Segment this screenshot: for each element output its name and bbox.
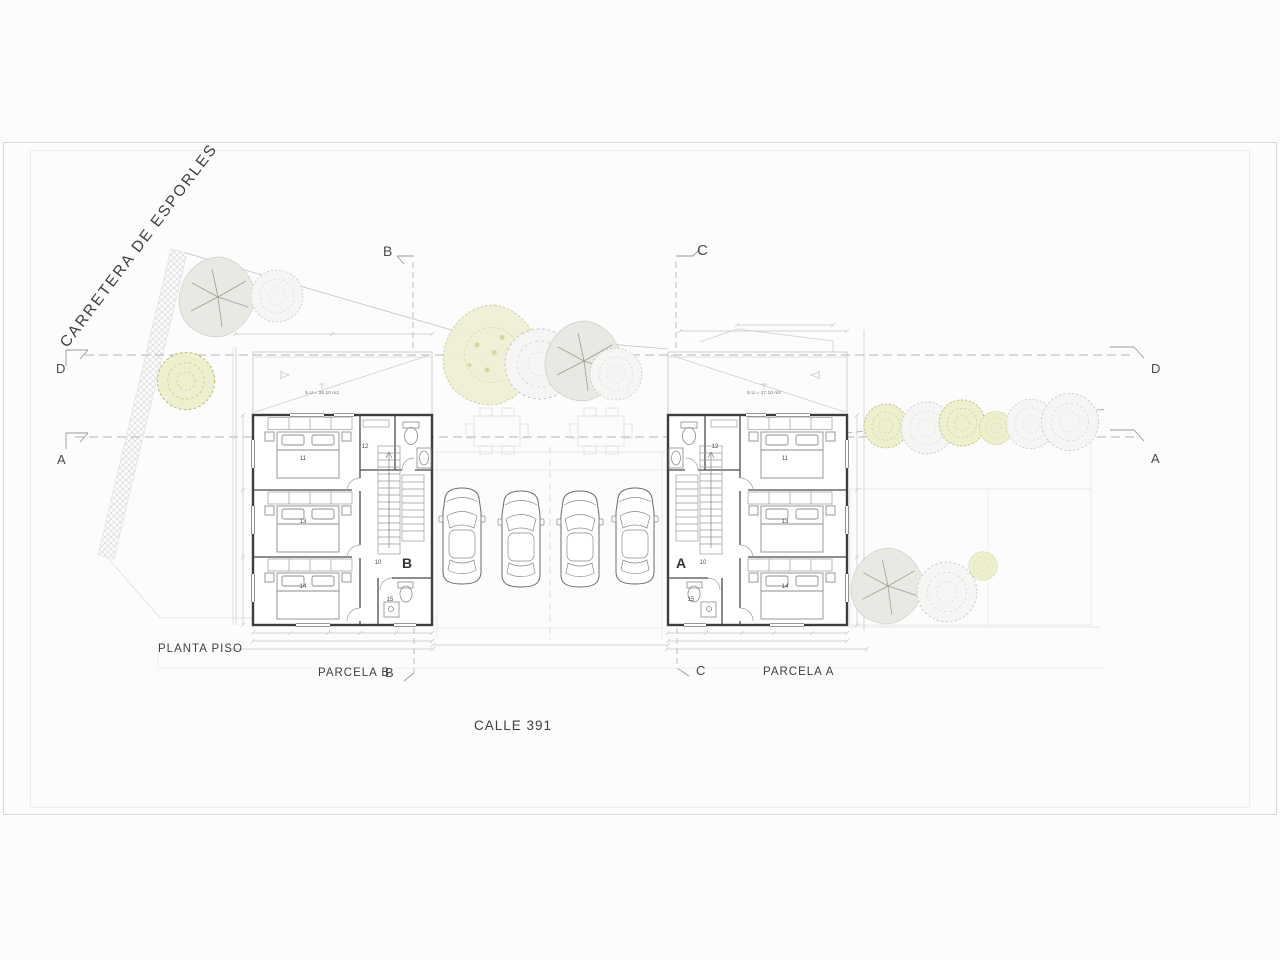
plan-title: PLANTA PISO — [158, 644, 243, 656]
plan-drawing — [0, 0, 1280, 960]
room-12-b: 12 — [358, 444, 372, 450]
parcel-a-label: PARCELA A — [763, 667, 834, 679]
room-11-a: 11 — [778, 456, 792, 462]
room-12-a: 12 — [708, 444, 722, 450]
parcel-b-label: PARCELA B — [318, 668, 390, 680]
section-marker-b-top: B — [383, 244, 392, 258]
room-11-b: 11 — [296, 456, 310, 462]
section-marker-b-plan: B — [402, 556, 412, 570]
room-15-b: 15 — [383, 597, 397, 603]
room-14-b: 14 — [296, 584, 310, 590]
room-13-b: 13 — [296, 519, 310, 525]
room-10-b: 10 — [371, 560, 385, 566]
house-b-plan — [251, 413, 432, 628]
section-marker-c-top: C — [697, 243, 708, 258]
section-marker-a-right: A — [1151, 452, 1160, 465]
section-marker-a-plan: A — [676, 556, 686, 570]
terrace-b-area-label: S.U.= 26.10 m2 — [292, 391, 352, 396]
section-marker-c-bottom: C — [696, 664, 705, 677]
street-label: CALLE 391 — [474, 719, 552, 733]
terrace-a-area-label: S.U.= 17.10 m2 — [734, 391, 794, 396]
sheet-frame — [4, 143, 1277, 815]
floor-plan-sheet: CARRETERA DE ESPORLES D A D A B C B C B … — [0, 0, 1280, 960]
terrace-a — [668, 352, 847, 415]
room-13-a: 13 — [778, 519, 792, 525]
parked-cars — [439, 488, 658, 587]
room-15-a: 15 — [684, 597, 698, 603]
house-a-plan — [668, 413, 849, 628]
section-marker-a-left: A — [57, 453, 66, 466]
room-10-a: 10 — [696, 560, 710, 566]
room-14-a: 14 — [778, 584, 792, 590]
section-marker-d-right: D — [1151, 362, 1160, 375]
section-marker-d-left: D — [56, 362, 65, 375]
